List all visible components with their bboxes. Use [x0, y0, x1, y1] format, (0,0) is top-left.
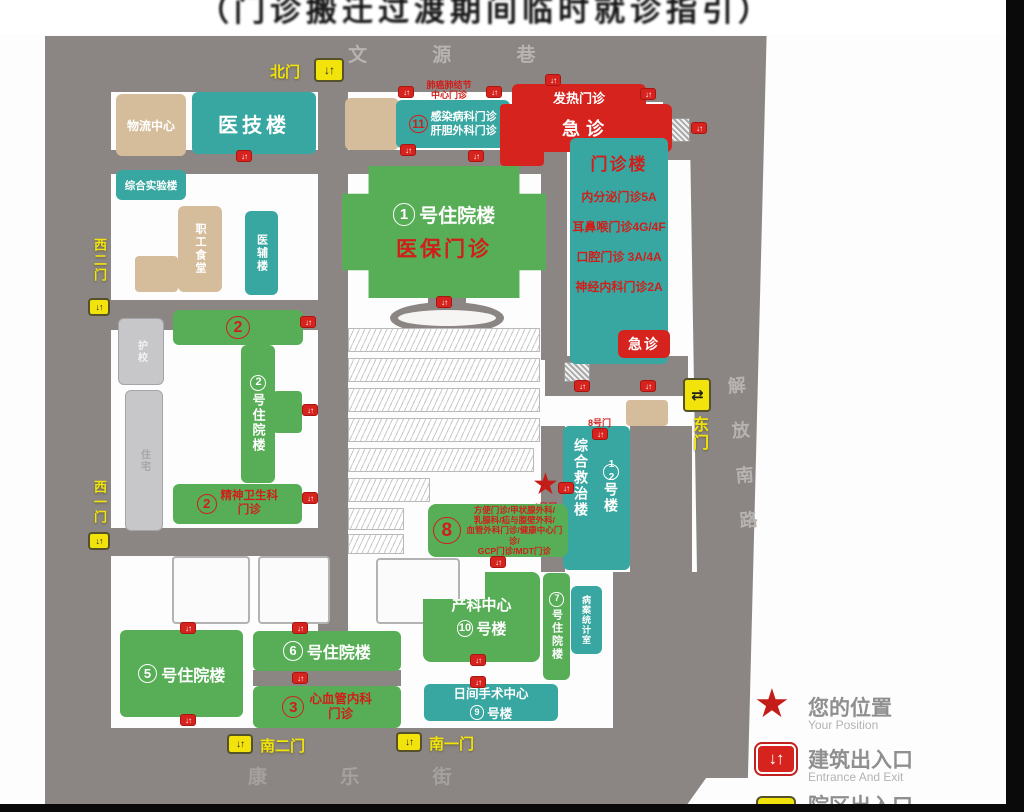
outpatient-title: 门诊楼 [591, 150, 648, 175]
gate-west1-label: 西一门 [90, 480, 109, 525]
outpatient-er-badge: 急诊 [618, 330, 670, 358]
building-number: 2 [197, 494, 217, 514]
building-label: 号住院楼 [419, 201, 495, 228]
building-12-comprehensive-treatment: 综合救治楼 12 号楼 [563, 426, 630, 570]
building-label: 综合救治楼 [571, 438, 591, 518]
building-3-cardiology-clinic: 3 心血管内科 门诊 [253, 686, 401, 728]
building-label: 物流中心 [127, 117, 175, 134]
entrance-icon [236, 150, 252, 162]
parking-row [348, 508, 404, 530]
building-label-number: 12 号楼 [601, 464, 621, 514]
entrance-icon [398, 86, 414, 98]
building-number: 10 [457, 620, 474, 637]
building-label: 2 号住院楼 [249, 375, 268, 454]
gate-north-label: 北门 [270, 61, 300, 82]
parking-row [348, 388, 540, 412]
outpatient-line: 口腔门诊 3A/4A [576, 248, 661, 265]
building-label: 病案统计室 [580, 595, 593, 645]
building-label-text: 号住院楼 [549, 609, 565, 661]
gate-east-icon [683, 378, 711, 412]
entrance-icon-gate1 [558, 482, 574, 494]
building-5-inpatient: 5 号住院楼 [120, 630, 243, 717]
lung-nodule-center-label: 肺癌肺结节 中心门诊 [414, 80, 484, 101]
gate-south1-icon [396, 732, 422, 752]
building-number: 11 [409, 115, 427, 133]
outpatient-line: 耳鼻喉门诊4G/4F [572, 218, 665, 235]
building-label: 日间手术中心 [453, 683, 528, 702]
building-number: 9 [470, 705, 484, 719]
gate-west2-label: 西二门 [90, 238, 109, 283]
parking-row [348, 448, 534, 472]
building-label: 住宅 [137, 449, 152, 473]
road-southeast-strip [613, 572, 701, 730]
building-11-infection-hepatobiliary: 11 感染病科门诊 肝胆外科门诊 [396, 100, 510, 148]
building-2-north-wing: 2 [173, 310, 303, 345]
building-logistics-center: 物流中心 [116, 94, 186, 156]
entrance-icon [640, 380, 656, 392]
building-medical-tech: 医技楼 [192, 92, 316, 154]
legend-entrance-sublabel: Entrance And Exit [808, 770, 903, 784]
frame-right [1006, 0, 1024, 812]
building-number: 12 [603, 464, 619, 480]
building-label: 综合实验楼 [125, 178, 178, 193]
entrance-icon [691, 122, 707, 134]
entrance-icon [470, 676, 486, 688]
entrance-icon [468, 150, 484, 162]
building-label-text: 号楼 [476, 618, 506, 639]
building-6-inpatient: 6 号住院楼 [253, 631, 401, 671]
parking-row [348, 478, 430, 502]
building-label: 号住院楼 [161, 662, 225, 686]
building-number: 7 [549, 592, 563, 606]
gate-south2-icon [227, 734, 253, 754]
gate-west1-icon [88, 532, 110, 550]
building-label: 感染病科门诊 肝胆外科门诊 [431, 110, 497, 139]
entrance-icon [292, 672, 308, 684]
building-label: 心血管内科 门诊 [309, 692, 372, 722]
building-number: 5 [138, 664, 158, 684]
outpatient-line: 内分泌门诊5A [581, 188, 656, 205]
building-label: 医辅楼 [254, 234, 270, 273]
medicare-clinic-label: 医保门诊 [396, 233, 492, 263]
entrance-icon [640, 88, 656, 100]
street-wenyuan: 文 源 巷 [348, 40, 566, 67]
building-label: 号住院楼 [307, 639, 371, 663]
page-title: （门诊搬迁过渡期间临时就诊指引） [198, 0, 774, 30]
entrance-icon [302, 404, 318, 416]
gate-east-label: 东门 [686, 416, 710, 452]
building-label-text: 号楼 [487, 703, 512, 722]
gate-north-icon [314, 58, 344, 82]
building-medical-aux: 医辅楼 [245, 211, 278, 295]
building-number: 2 [250, 375, 267, 392]
parking-row [348, 328, 540, 352]
frame-bottom [0, 804, 1024, 812]
building-9-day-surgery: 日间手术中心 9 号楼 [424, 684, 558, 721]
parking-row [348, 534, 404, 554]
building-medical-records: 病案统计室 [571, 586, 602, 654]
road-wedge [630, 426, 692, 576]
building-label: 护校 [134, 340, 149, 364]
legend-star-icon: ★ [754, 684, 790, 724]
road-inner-h3 [111, 528, 318, 556]
entrance-icon [486, 86, 502, 98]
building-number: 8 [433, 517, 461, 545]
building-number: 6 [283, 641, 303, 661]
hospital-campus-map: （门诊搬迁过渡期间临时就诊指引） 文 源 巷 康 乐 街 解放南路 物流中心 医… [0, 0, 1024, 812]
street-kangle: 康 乐 街 [248, 762, 486, 789]
building-label: 方便门诊/甲状腺外科/ 乳腺科/疝与腹壁外科/ 血管外科门诊/健康中心门诊/ G… [466, 505, 563, 557]
entrance-icon [300, 316, 316, 328]
building-1-inpatient: 1 号住院楼 医保门诊 [342, 166, 546, 298]
road-west [45, 36, 111, 772]
entrance-icon [180, 622, 196, 634]
building-label: 产科中心 [451, 594, 511, 615]
legend-position-sublabel: Your Position [808, 718, 878, 732]
entrance-icon [400, 144, 416, 156]
gate-south1-label: 南一门 [429, 733, 474, 754]
gate-south2-label: 南二门 [260, 735, 305, 756]
building-8-clinics: 8 方便门诊/甲状腺外科/ 乳腺科/疝与腹壁外科/ 血管外科门诊/健康中心门诊/… [428, 504, 568, 557]
building-2-psychiatric-clinic: 2 精神卫生科 门诊 [173, 484, 302, 524]
parking-row [348, 418, 540, 442]
building-number: 3 [282, 696, 304, 718]
entrance-icon [302, 492, 318, 504]
building-2-inpatient: 2 号住院楼 [241, 345, 275, 483]
road-sliver-b6-b3 [253, 670, 401, 686]
building-staff-canteen-wing [135, 256, 178, 292]
title-band: （门诊搬迁过渡期间临时就诊指引） [0, 0, 1006, 34]
badge-label: 急诊 [628, 334, 660, 354]
entrance-icon [292, 622, 308, 634]
building-label-text: 号楼 [601, 482, 621, 514]
building-small-tan-ne-of-12 [626, 400, 668, 426]
building-nursing-school: 护校 [118, 318, 164, 385]
building-label: 7 号住院楼 [549, 592, 565, 660]
entrance-icon [545, 74, 561, 86]
building-label: 精神卫生科 门诊 [221, 490, 279, 518]
building-unlabeled-tan [345, 98, 399, 150]
building-label-text: 号住院楼 [249, 393, 268, 453]
building-number: 2 [226, 316, 250, 340]
outpatient-line: 神经内科门诊2A [575, 278, 662, 295]
entrance-icon [490, 556, 506, 568]
entrance-icon [470, 654, 486, 666]
building-2-east-wing [273, 391, 302, 433]
your-position-star: ★ [532, 470, 559, 500]
service-building [172, 556, 250, 624]
building-comprehensive-lab: 综合实验楼 [116, 170, 186, 200]
building-number: 1 [393, 203, 415, 225]
service-building [258, 556, 330, 624]
building-label: 职工食堂 [192, 223, 208, 275]
entrance-icon-gate8 [592, 428, 608, 440]
building-residence: 住宅 [125, 390, 163, 531]
building-7-inpatient: 7 号住院楼 [543, 573, 570, 680]
entrance-icon [436, 296, 452, 308]
entrance-icon [574, 380, 590, 392]
legend-entrance-icon [756, 744, 796, 774]
building-staff-canteen: 职工食堂 [178, 206, 222, 292]
entrance-icon [180, 714, 196, 726]
parking-row [348, 358, 540, 382]
stairs-opd-south [564, 362, 590, 382]
gate-west2-icon [88, 298, 110, 316]
building-label: 医技楼 [218, 109, 290, 138]
